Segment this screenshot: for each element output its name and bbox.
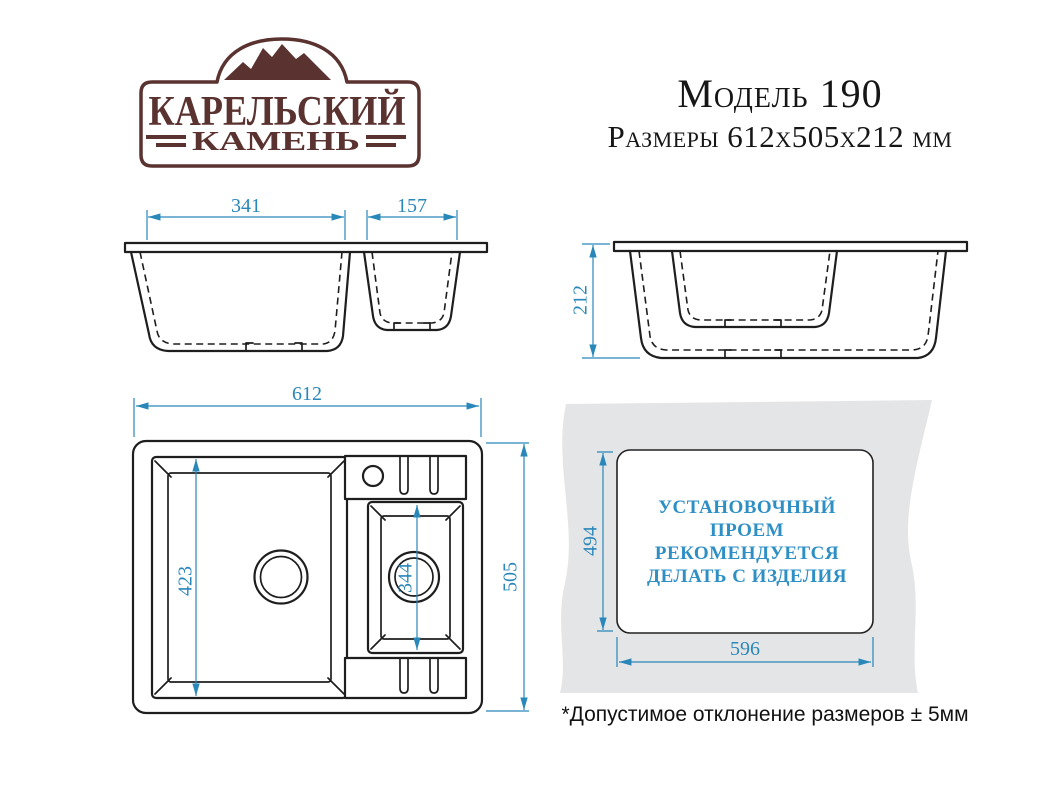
model-title: Модель 190 (590, 70, 970, 117)
side-drain-clips (725, 320, 781, 358)
side-small-bowl-dashed (680, 251, 830, 320)
dim-label-small-bowl-length: 344 (395, 563, 417, 593)
side-rim (614, 242, 967, 251)
dim-label-overall-depth: 505 (500, 562, 522, 592)
side-small-bowl-outline (672, 251, 837, 327)
front-small-bowl-inner (372, 252, 452, 323)
side-view-drawing: 212 (570, 242, 967, 358)
dim-label-large-bowl-width: 341 (231, 195, 261, 217)
dim-label-large-bowl-length: 423 (175, 566, 197, 596)
cutout-note-line: ДЕЛАТЬ С ИЗДЕЛИЯ (627, 565, 867, 588)
dim-label-overall-width: 612 (292, 383, 322, 405)
side-outer-outline (630, 251, 946, 358)
dim-label-height: 212 (570, 285, 592, 315)
cutout-note-line: ПРОЕМ (627, 519, 867, 542)
tolerance-footnote: *Допустимое отклонение размеров ± 5мм (545, 703, 985, 727)
top-view-drawing: 612 505 423 344 (133, 383, 529, 713)
brand-name-line2: КАМЕНЬ (192, 126, 360, 156)
dim-label-small-bowl-width: 157 (397, 195, 427, 217)
front-view-drawing: 341 157 (125, 195, 487, 351)
cutout-note: УСТАНОВОЧНЫЙ ПРОЕМ РЕКОМЕНДУЕТСЯ ДЕЛАТЬ … (627, 496, 867, 588)
sink-datasheet-page: КАРЕЛЬСКИЙ КАМЕНЬ 341 157 212 612 505 (0, 0, 1046, 800)
front-rim (125, 243, 487, 252)
dimensions-subtitle: Размеры 612x505x212 мм (580, 119, 980, 155)
cutout-note-line: УСТАНОВОЧНЫЙ (627, 496, 867, 519)
front-large-bowl-inner (140, 252, 342, 344)
brand-logo: КАРЕЛЬСКИЙ КАМЕНЬ (141, 39, 419, 166)
front-small-bowl-outline (364, 252, 460, 330)
cutout-note-line: РЕКОМЕНДУЕТСЯ (627, 542, 867, 565)
dim-label-cutout-height: 494 (580, 526, 602, 556)
dim-label-cutout-width: 596 (730, 638, 760, 660)
side-outer-inner-dashed (639, 251, 938, 350)
front-large-bowl-outline (131, 252, 350, 351)
